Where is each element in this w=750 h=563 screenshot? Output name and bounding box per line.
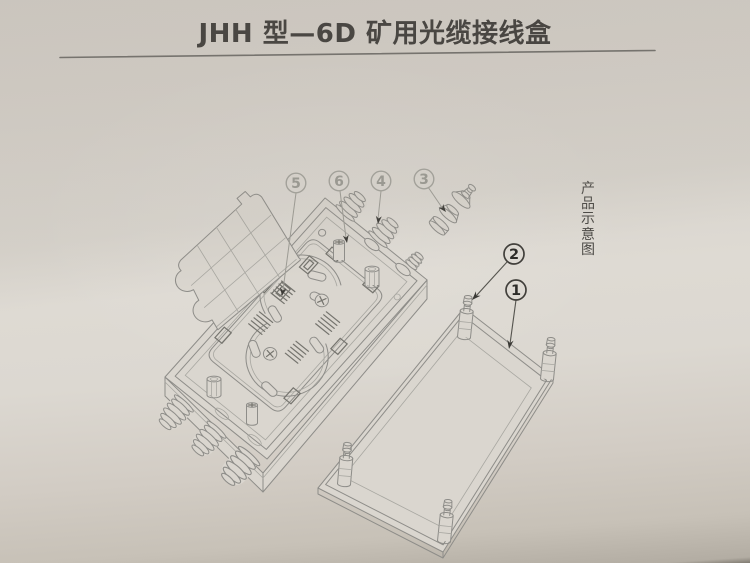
callout-5-number: 5 (291, 176, 301, 192)
caption-char: 示 (581, 212, 595, 227)
callout-2-number: 2 (509, 247, 519, 263)
screw-post (247, 403, 258, 426)
leader-1 (510, 300, 516, 344)
photographed-page: JHH 型—6D 矿用光缆接线盒 (0, 0, 750, 563)
caption-char: 意 (581, 228, 595, 243)
caption-char: 产 (581, 182, 595, 197)
plug-cap (450, 178, 482, 210)
lid-bolt (540, 337, 558, 382)
callout-1: 1 (506, 280, 526, 300)
title-underline (60, 51, 655, 58)
callout-6-number: 6 (334, 174, 344, 190)
leader-4 (378, 191, 381, 219)
callout-3: 3 (414, 169, 434, 189)
callout-6: 6 (329, 171, 349, 191)
screw-post (334, 240, 345, 263)
callout-4-number: 4 (376, 174, 386, 190)
hex-standoff (365, 266, 379, 288)
callout-3-number: 3 (419, 172, 429, 188)
cable-gland (187, 419, 228, 460)
leader-3 (428, 187, 443, 209)
caption-char: 品 (581, 197, 595, 212)
product-caption: 产 品 示 意 图 (579, 182, 597, 258)
callout-5: 5 (286, 173, 306, 193)
callout-1-number: 1 (511, 283, 521, 299)
callout-4: 4 (371, 171, 391, 191)
callout-2: 2 (504, 244, 524, 264)
exploded-diagram: 5 6 4 3 2 1 (0, 0, 750, 563)
hex-standoff (207, 376, 221, 398)
leader-2 (476, 262, 507, 296)
cable-gland (154, 393, 195, 434)
caption-char: 图 (581, 243, 595, 258)
